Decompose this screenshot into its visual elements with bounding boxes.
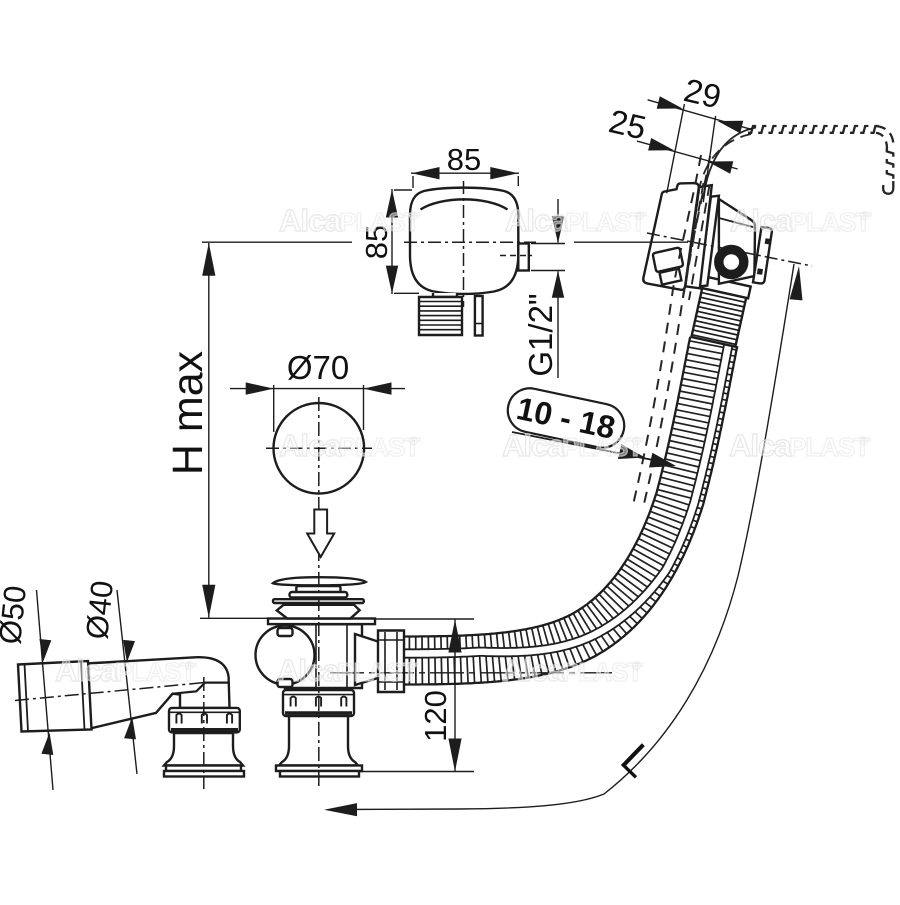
svg-text:®: ® [632, 659, 641, 673]
svg-text:Alca: Alca [502, 653, 565, 688]
svg-text:H max: H max [164, 350, 212, 475]
svg-text:Alca: Alca [55, 653, 118, 688]
svg-text:®: ® [407, 659, 416, 673]
svg-text:Alca: Alca [279, 203, 342, 238]
svg-text:Alca: Alca [277, 653, 340, 688]
svg-text:®: ® [632, 434, 641, 448]
svg-text:Alca: Alca [279, 428, 342, 463]
svg-text:G1/2": G1/2" [522, 293, 559, 376]
svg-text:120: 120 [418, 690, 453, 742]
svg-text:85: 85 [447, 142, 481, 177]
svg-text:®: ® [409, 434, 418, 448]
svg-text:Alca: Alca [730, 203, 793, 238]
svg-text:Alca: Alca [505, 203, 568, 238]
svg-text:Alca: Alca [502, 428, 565, 463]
svg-text:Ø70: Ø70 [287, 349, 349, 386]
svg-text:®: ® [635, 209, 644, 223]
svg-text:®: ® [859, 434, 868, 448]
svg-text:Alca: Alca [729, 428, 792, 463]
svg-text:®: ® [409, 209, 418, 223]
svg-text:®: ® [860, 209, 869, 223]
svg-text:Ø40: Ø40 [79, 579, 120, 641]
svg-text:®: ® [185, 659, 194, 673]
